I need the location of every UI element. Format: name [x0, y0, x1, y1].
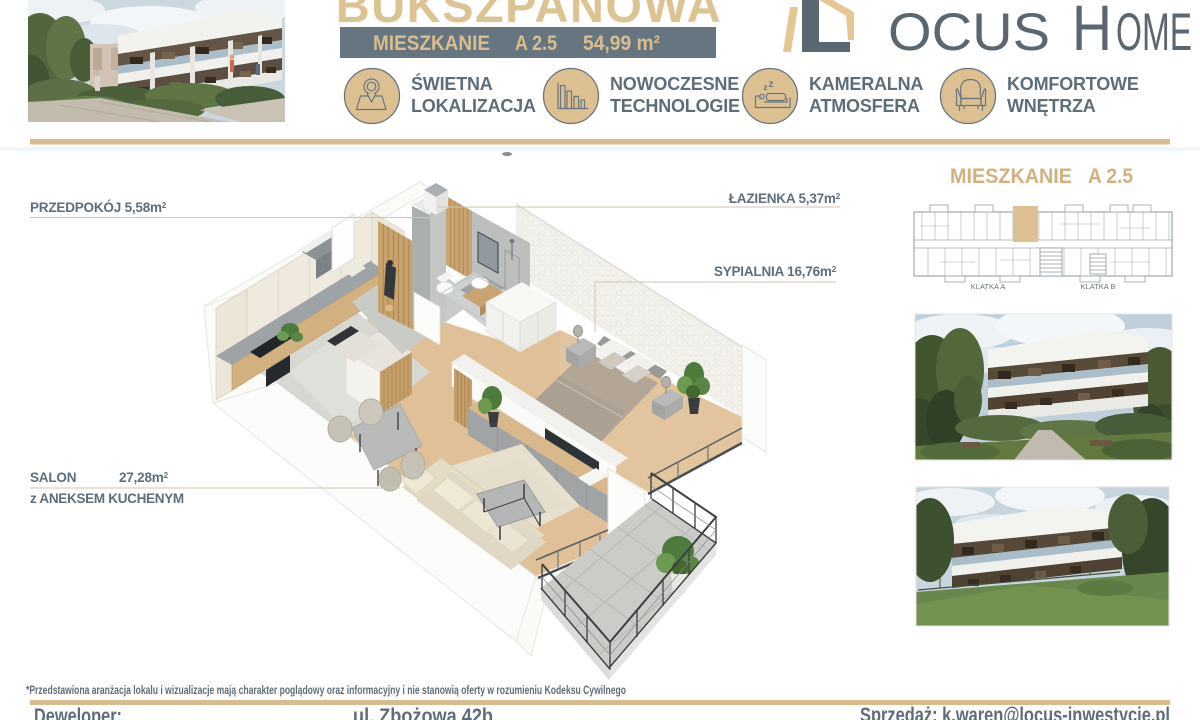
svg-text:KLATKA A: KLATKA A — [971, 282, 1005, 291]
svg-text:H: H — [1072, 0, 1112, 64]
svg-text:WNĘTRZA: WNĘTRZA — [1007, 96, 1096, 116]
svg-text:A 2.5: A 2.5 — [1088, 165, 1133, 188]
svg-text:z: z — [764, 83, 768, 92]
svg-text:SYPIALNIA 16,76m2: SYPIALNIA 16,76m2 — [714, 264, 837, 279]
svg-text:z: z — [769, 79, 774, 90]
svg-text:MIESZKANIE: MIESZKANIE — [950, 165, 1072, 188]
svg-text:KOMFORTOWE: KOMFORTOWE — [1007, 74, 1139, 94]
svg-text:z ANEKSEM KUCHENYM: z ANEKSEM KUCHENYM — [30, 491, 184, 506]
svg-text:OME: OME — [1116, 3, 1192, 62]
svg-text:PRZEDPOKÓJ 5,58m2: PRZEDPOKÓJ 5,58m2 — [30, 200, 167, 215]
svg-text:KLATKA B: KLATKA B — [1081, 282, 1116, 291]
svg-text:MIESZKANIE: MIESZKANIE — [373, 32, 490, 55]
svg-text:TECHNOLOGIE: TECHNOLOGIE — [610, 96, 740, 116]
svg-text:ŁAZIENKA 5,37m2: ŁAZIENKA 5,37m2 — [729, 191, 841, 206]
svg-text:ul. Zbożowa 42b: ul. Zbożowa 42b — [353, 705, 493, 720]
svg-text:*Przedstawiona aranżacja lokal: *Przedstawiona aranżacja lokalu i wizual… — [26, 685, 626, 697]
svg-text:SALON: SALON — [30, 470, 76, 485]
svg-text:Sprzedaż: k.waren@locus-inwest: Sprzedaż: k.waren@locus-inwestycje.pl — [860, 704, 1170, 720]
svg-text:ATMOSFERA: ATMOSFERA — [809, 96, 920, 116]
svg-text:54,99 m²: 54,99 m² — [583, 32, 660, 55]
svg-text:Deweloper:: Deweloper: — [34, 705, 122, 720]
svg-text:A 2.5: A 2.5 — [515, 32, 557, 55]
svg-text:ŚWIETNA: ŚWIETNA — [411, 73, 493, 94]
svg-text:27,28m2: 27,28m2 — [119, 470, 169, 485]
svg-text:OCUS: OCUS — [888, 3, 1050, 62]
svg-text:LOKALIZACJA: LOKALIZACJA — [411, 96, 536, 116]
svg-text:KAMERALNA: KAMERALNA — [809, 74, 923, 94]
svg-text:NOWOCZESNE: NOWOCZESNE — [610, 74, 739, 94]
